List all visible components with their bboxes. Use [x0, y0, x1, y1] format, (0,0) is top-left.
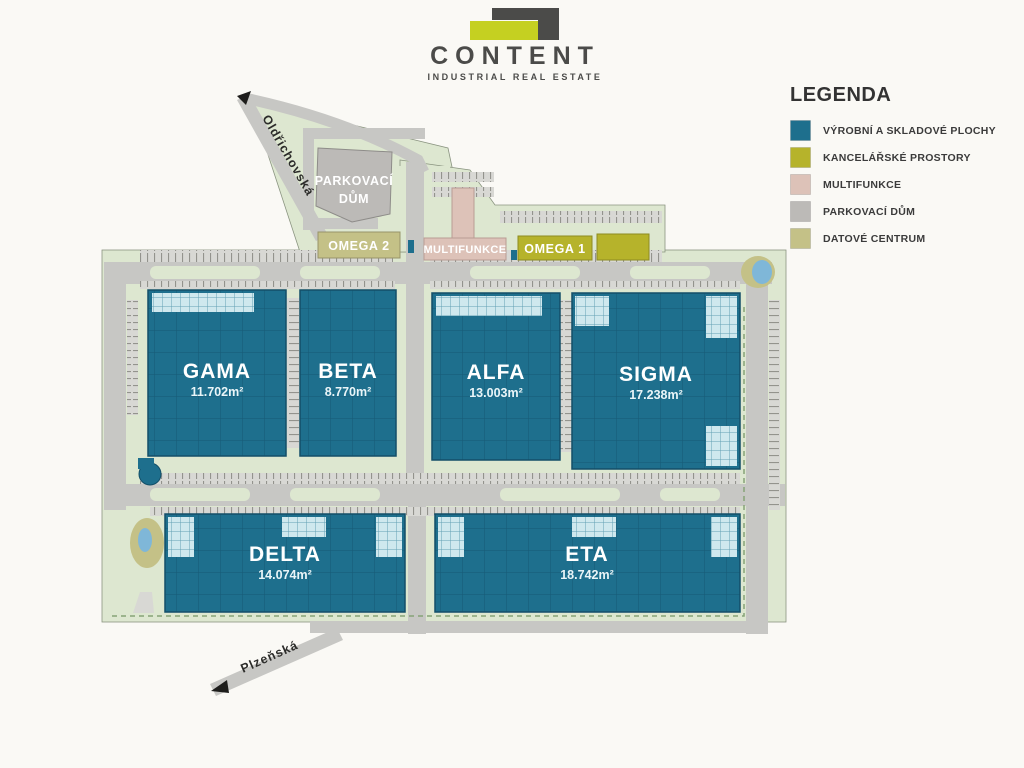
island	[630, 266, 710, 279]
dock-column	[560, 300, 572, 452]
label-parkovaci-dum-line1: PARKOVACÍ	[315, 173, 394, 188]
dock-row	[140, 281, 395, 289]
legend-swatch-multifunction-icon	[790, 174, 811, 195]
island	[500, 488, 620, 501]
legend-title: LEGENDA	[790, 84, 1020, 107]
logo-mark-icon	[470, 8, 560, 41]
building-omega1-annex[interactable]	[597, 234, 649, 260]
dock-column	[287, 298, 299, 448]
hall-alfa-name: ALFA	[467, 361, 526, 384]
label-parkovaci-dum-line2: DŮM	[339, 190, 369, 206]
legend: LEGENDA VÝROBNÍ A SKLADOVÉ PLOCHY KANCEL…	[790, 84, 1020, 252]
hall-gama-area: 11.702m²	[191, 385, 244, 399]
parking-row	[140, 473, 740, 484]
legend-swatch-data-center-icon	[790, 228, 811, 249]
east-road	[746, 262, 768, 634]
legend-item-data-center: DATOVÉ CENTRUM	[790, 225, 1020, 252]
label-omega1: OMEGA 1	[524, 242, 585, 256]
parking-row	[500, 211, 662, 223]
hall-alfa-area: 13.003m²	[469, 386, 523, 400]
hall-beta-name: BETA	[318, 360, 378, 383]
legend-label: VÝROBNÍ A SKLADOVÉ PLOCHY	[823, 125, 996, 137]
plzenska-road	[210, 628, 343, 696]
mezzanine-sigma	[706, 426, 737, 466]
island	[470, 266, 580, 279]
label-omega2: OMEGA 2	[328, 239, 389, 253]
legend-label: PARKOVACÍ DŮM	[823, 206, 915, 218]
hall-eta-area: 18.742m²	[560, 568, 614, 582]
legend-label: MULTIFUNKCE	[823, 179, 901, 191]
mezzanine-sigma	[575, 296, 609, 326]
parking-house-loop-top	[303, 128, 425, 139]
hall-gama-name: GAMA	[183, 360, 251, 383]
hall-sigma-area: 17.238m²	[629, 388, 683, 402]
mezzanine-alfa	[436, 296, 542, 316]
halls	[148, 290, 740, 612]
mezzanine-delta	[168, 517, 194, 557]
logo-title: CONTENT	[420, 43, 610, 69]
hall-beta-area: 8.770m²	[325, 385, 372, 399]
gatehouse	[511, 250, 517, 260]
island	[660, 488, 720, 501]
hall-delta-area: 14.074m²	[258, 568, 312, 582]
company-logo: CONTENT INDUSTRIAL REAL ESTATE	[420, 8, 610, 82]
south-road	[310, 621, 758, 633]
legend-item-parking-house: PARKOVACÍ DŮM	[790, 198, 1020, 225]
hall-sigma-name: SIGMA	[619, 363, 693, 386]
island	[150, 266, 260, 279]
mezzanine-delta	[376, 517, 402, 557]
parking-column	[127, 300, 138, 415]
mezzanine-delta	[282, 517, 326, 537]
logo-subtitle: INDUSTRIAL REAL ESTATE	[420, 72, 610, 82]
dock-row	[430, 281, 740, 289]
legend-swatch-production-icon	[790, 120, 811, 141]
legend-item-production: VÝROBNÍ A SKLADOVÉ PLOCHY	[790, 117, 1020, 144]
west-road	[104, 262, 126, 510]
legend-swatch-parking-house-icon	[790, 201, 811, 222]
legend-label: KANCELÁŘSKÉ PROSTORY	[823, 152, 971, 164]
legend-item-multifunction: MULTIFUNKCE	[790, 171, 1020, 198]
hall-eta-name: ETA	[565, 543, 608, 566]
parking-column	[769, 300, 780, 510]
island	[290, 488, 380, 501]
pond-sw	[138, 528, 152, 552]
logo-yellow-shape	[470, 21, 538, 40]
mezzanine-gama	[152, 293, 254, 312]
hall-delta-name: DELTA	[249, 543, 321, 566]
legend-item-office: KANCELÁŘSKÉ PROSTORY	[790, 144, 1020, 171]
multifunction-tower[interactable]	[452, 188, 474, 240]
parking-row	[432, 172, 494, 182]
legend-label: DATOVÉ CENTRUM	[823, 233, 925, 245]
mezzanine-eta	[438, 517, 464, 557]
island	[150, 488, 250, 501]
central-road-north	[406, 162, 424, 492]
pump-house	[138, 458, 154, 469]
parking-house-loop-south	[303, 218, 378, 229]
legend-swatch-office-icon	[790, 147, 811, 168]
mezzanine-eta	[572, 517, 616, 537]
label-multifunkce: MULTIFUNKCE	[423, 244, 506, 256]
island	[300, 266, 380, 279]
gatehouse	[408, 240, 414, 253]
mezzanine-eta	[711, 517, 737, 557]
pond-ne	[752, 260, 772, 284]
mezzanine-sigma	[706, 296, 737, 338]
